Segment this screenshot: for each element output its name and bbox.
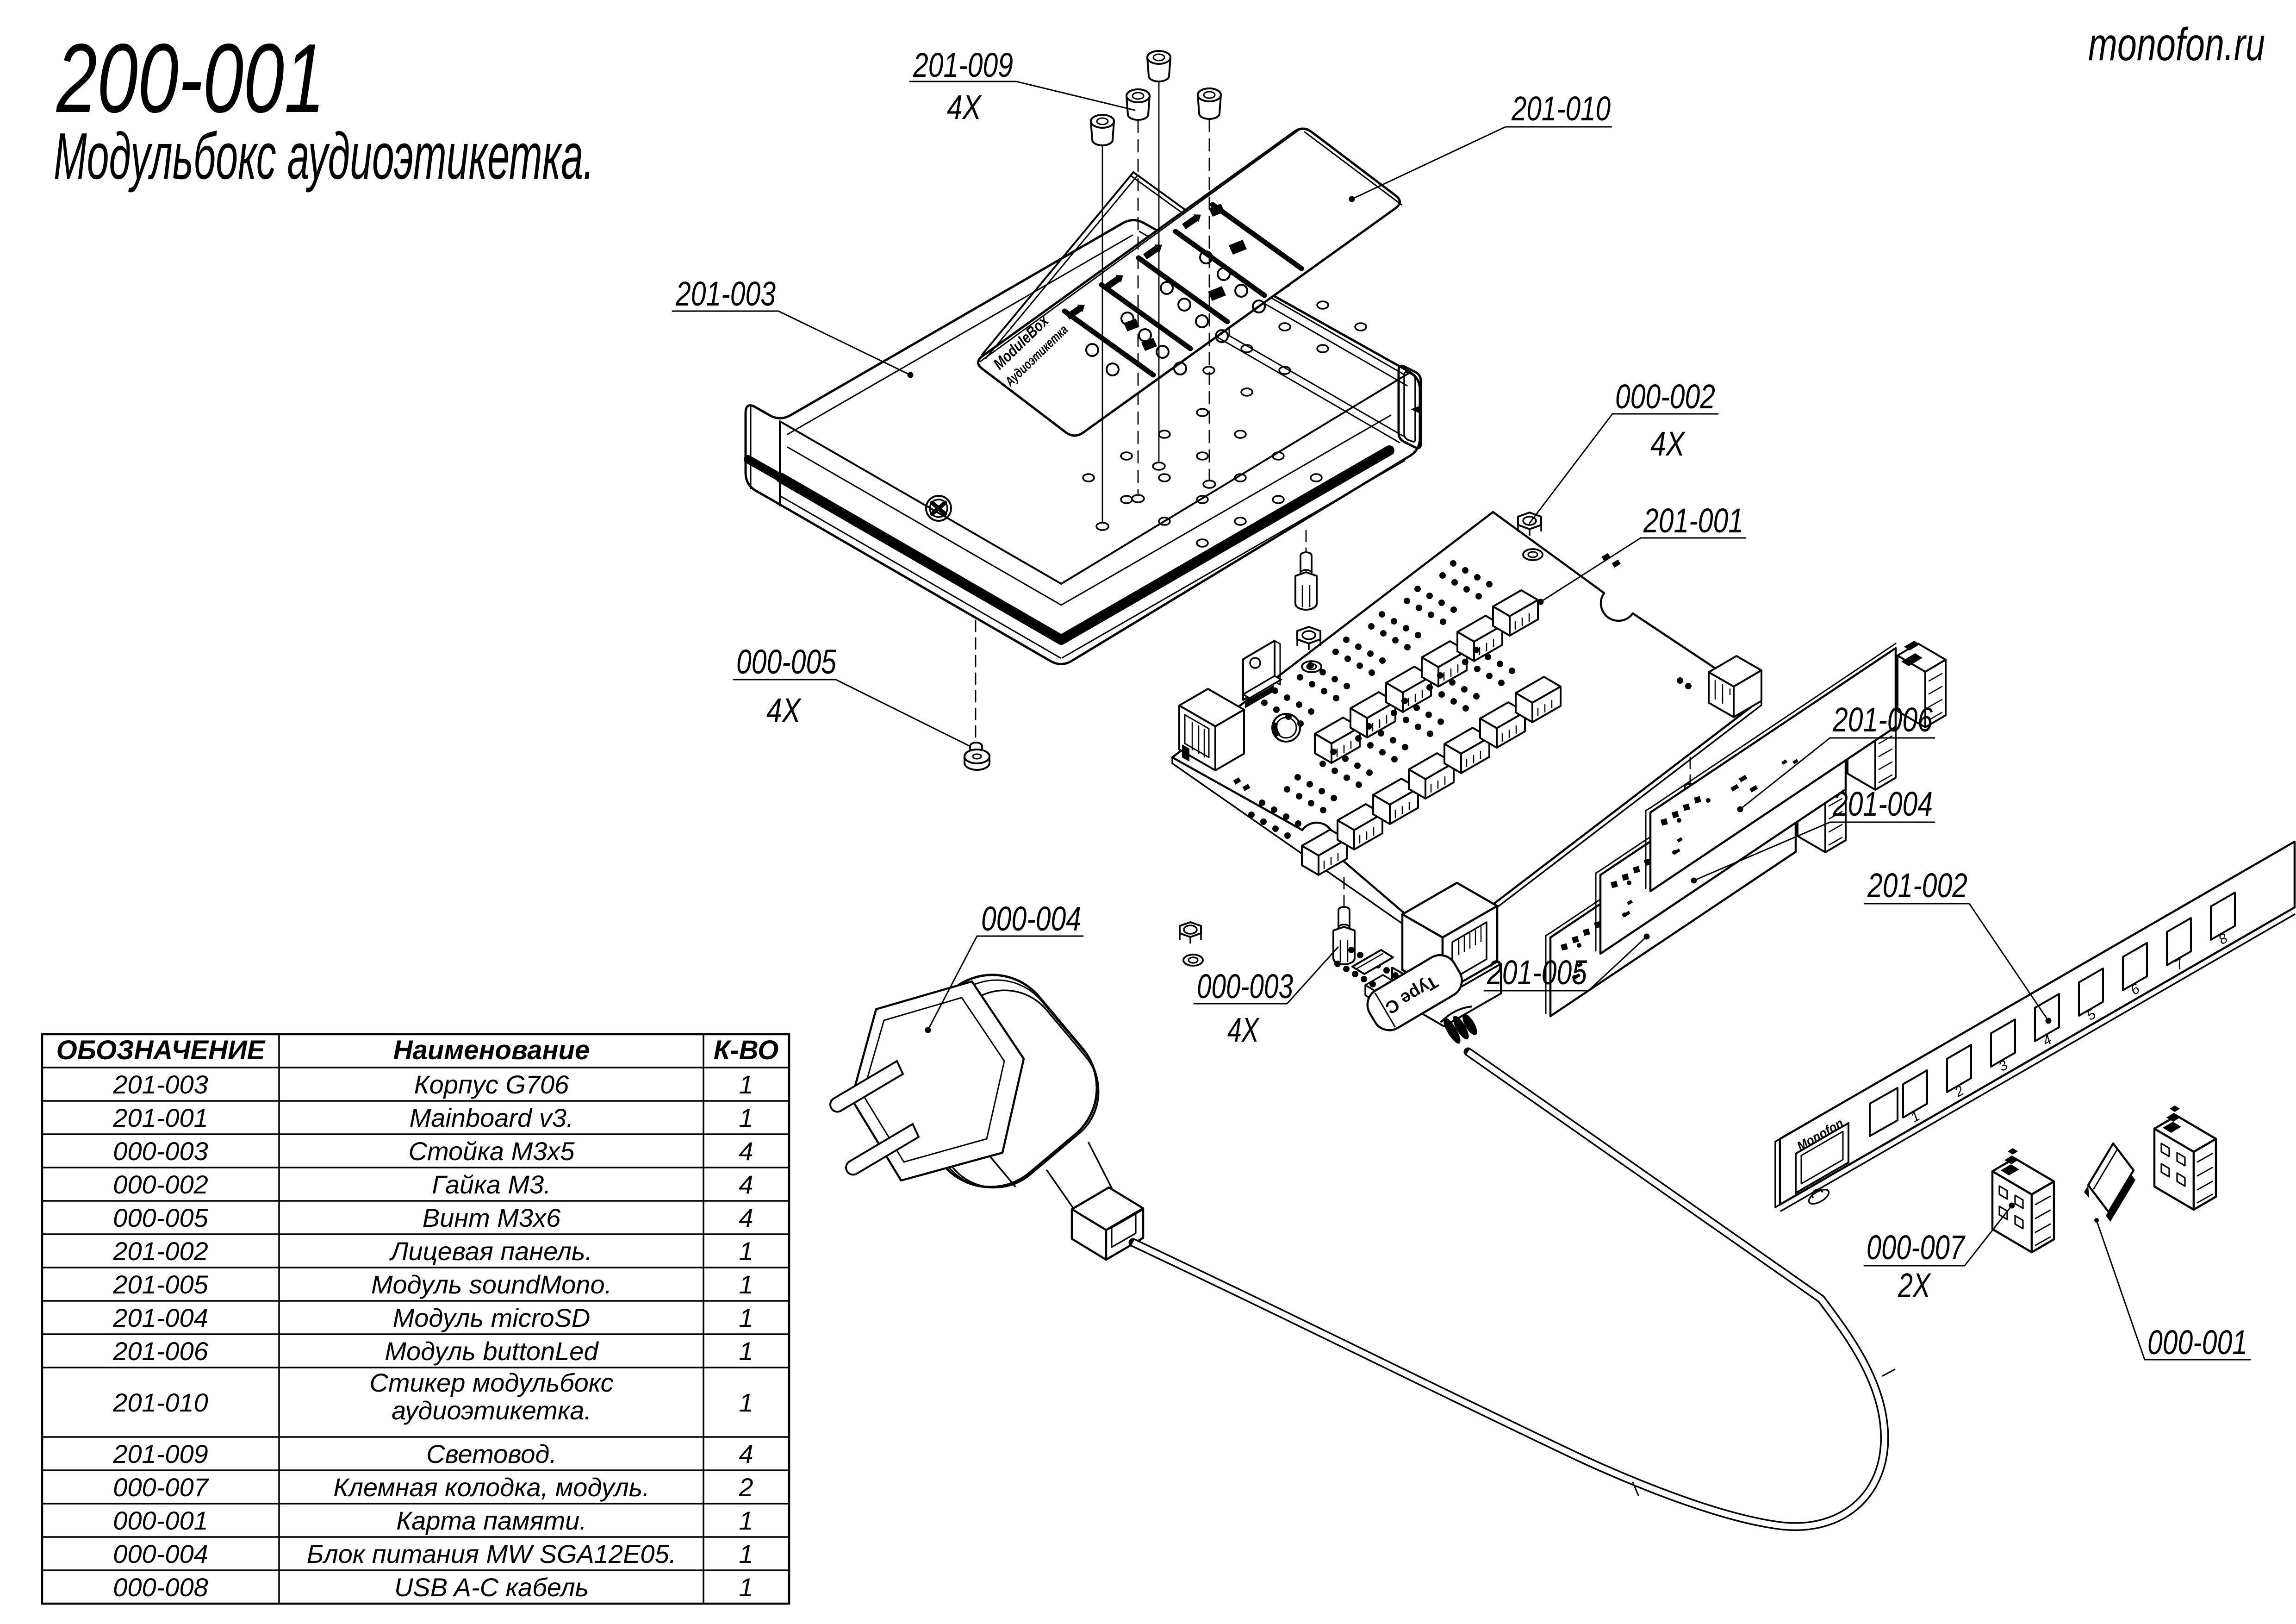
svg-text:4X: 4X <box>1650 425 1686 463</box>
svg-text:1: 1 <box>739 1573 753 1602</box>
svg-text:201-003: 201-003 <box>675 275 776 313</box>
svg-text:201-009: 201-009 <box>913 46 1013 84</box>
svg-text:4: 4 <box>739 1439 753 1468</box>
svg-text:200-001: 200-001 <box>56 23 325 133</box>
svg-text:1: 1 <box>739 1539 753 1568</box>
svg-text:Модульбокс аудиоэтикетка.: Модульбокс аудиоэтикетка. <box>54 119 594 193</box>
svg-text:Винт М3х6: Винт М3х6 <box>423 1203 561 1232</box>
svg-text:Mainboard v3.: Mainboard v3. <box>410 1103 574 1132</box>
svg-text:201-005: 201-005 <box>1487 953 1587 992</box>
svg-text:Модуль soundMono.: Модуль soundMono. <box>371 1270 612 1299</box>
svg-text:201-004: 201-004 <box>112 1303 208 1332</box>
svg-text:4X: 4X <box>766 691 802 730</box>
svg-text:000-004: 000-004 <box>113 1539 208 1568</box>
svg-text:Блок питания MW SGA12E05.: Блок питания MW SGA12E05. <box>307 1539 677 1568</box>
svg-text:1: 1 <box>739 1070 753 1099</box>
svg-text:4X: 4X <box>947 88 982 126</box>
svg-text:1: 1 <box>739 1303 753 1332</box>
svg-text:2X: 2X <box>1898 1266 1931 1305</box>
svg-text:000-005: 000-005 <box>736 643 837 681</box>
svg-text:ОБОЗНАЧЕНИЕ: ОБОЗНАЧЕНИЕ <box>56 1035 266 1065</box>
svg-text:201-010: 201-010 <box>112 1388 208 1417</box>
svg-text:1: 1 <box>739 1388 753 1417</box>
svg-text:Карта памяти.: Карта памяти. <box>396 1506 587 1535</box>
svg-text:000-005: 000-005 <box>113 1203 208 1232</box>
svg-text:monofon.ru: monofon.ru <box>2088 19 2265 70</box>
svg-text:Стикер модульбокс: Стикер модульбокс <box>369 1368 613 1397</box>
svg-text:Стойка М3х5: Стойка М3х5 <box>409 1137 575 1166</box>
svg-text:201-002: 201-002 <box>112 1237 208 1266</box>
svg-text:201-002: 201-002 <box>1867 866 1967 905</box>
svg-text:000-001: 000-001 <box>113 1506 208 1535</box>
svg-text:201-001: 201-001 <box>112 1103 208 1132</box>
svg-text:USB A-C кабель: USB A-C кабель <box>394 1573 589 1602</box>
svg-text:Лицевая панель.: Лицевая панель. <box>389 1237 592 1266</box>
svg-text:201-006: 201-006 <box>1832 700 1933 739</box>
svg-text:4X: 4X <box>1227 1011 1260 1049</box>
svg-text:201-009: 201-009 <box>112 1439 208 1468</box>
svg-text:1: 1 <box>739 1103 753 1132</box>
svg-text:201-001: 201-001 <box>1643 501 1743 540</box>
svg-text:Наименование: Наименование <box>393 1035 590 1065</box>
svg-text:4: 4 <box>739 1137 753 1166</box>
svg-text:000-003: 000-003 <box>113 1137 208 1166</box>
svg-text:000-007: 000-007 <box>1867 1228 1966 1267</box>
svg-text:000-004: 000-004 <box>981 899 1081 938</box>
svg-text:201-003: 201-003 <box>112 1070 208 1099</box>
svg-text:201-006: 201-006 <box>112 1337 208 1366</box>
svg-text:Корпус G706: Корпус G706 <box>414 1070 570 1099</box>
svg-text:000-001: 000-001 <box>2147 1323 2247 1362</box>
svg-text:201-010: 201-010 <box>1511 89 1611 128</box>
svg-text:000-002: 000-002 <box>1615 377 1715 416</box>
svg-text:201-004: 201-004 <box>1832 785 1933 823</box>
svg-text:1: 1 <box>739 1337 753 1366</box>
svg-text:аудиоэтикетка.: аудиоэтикетка. <box>392 1396 591 1425</box>
svg-text:1: 1 <box>739 1237 753 1266</box>
svg-text:4: 4 <box>739 1203 753 1232</box>
svg-text:1: 1 <box>739 1506 753 1535</box>
svg-text:000-008: 000-008 <box>113 1573 208 1602</box>
svg-text:000-002: 000-002 <box>113 1170 208 1199</box>
svg-text:4: 4 <box>739 1170 753 1199</box>
svg-text:000-007: 000-007 <box>113 1473 209 1502</box>
svg-text:000-003: 000-003 <box>1197 967 1293 1006</box>
svg-text:Модуль microSD: Модуль microSD <box>393 1303 591 1332</box>
svg-text:Модуль buttonLed: Модуль buttonLed <box>385 1337 599 1366</box>
svg-text:1: 1 <box>739 1270 753 1299</box>
svg-text:Световод.: Световод. <box>426 1439 557 1468</box>
svg-text:Клемная колодка, модуль.: Клемная колодка, модуль. <box>333 1473 649 1502</box>
svg-text:К-ВО: К-ВО <box>714 1035 779 1065</box>
svg-text:Гайка М3.: Гайка М3. <box>432 1170 551 1199</box>
svg-text:2: 2 <box>738 1473 753 1502</box>
svg-text:201-005: 201-005 <box>112 1270 208 1299</box>
